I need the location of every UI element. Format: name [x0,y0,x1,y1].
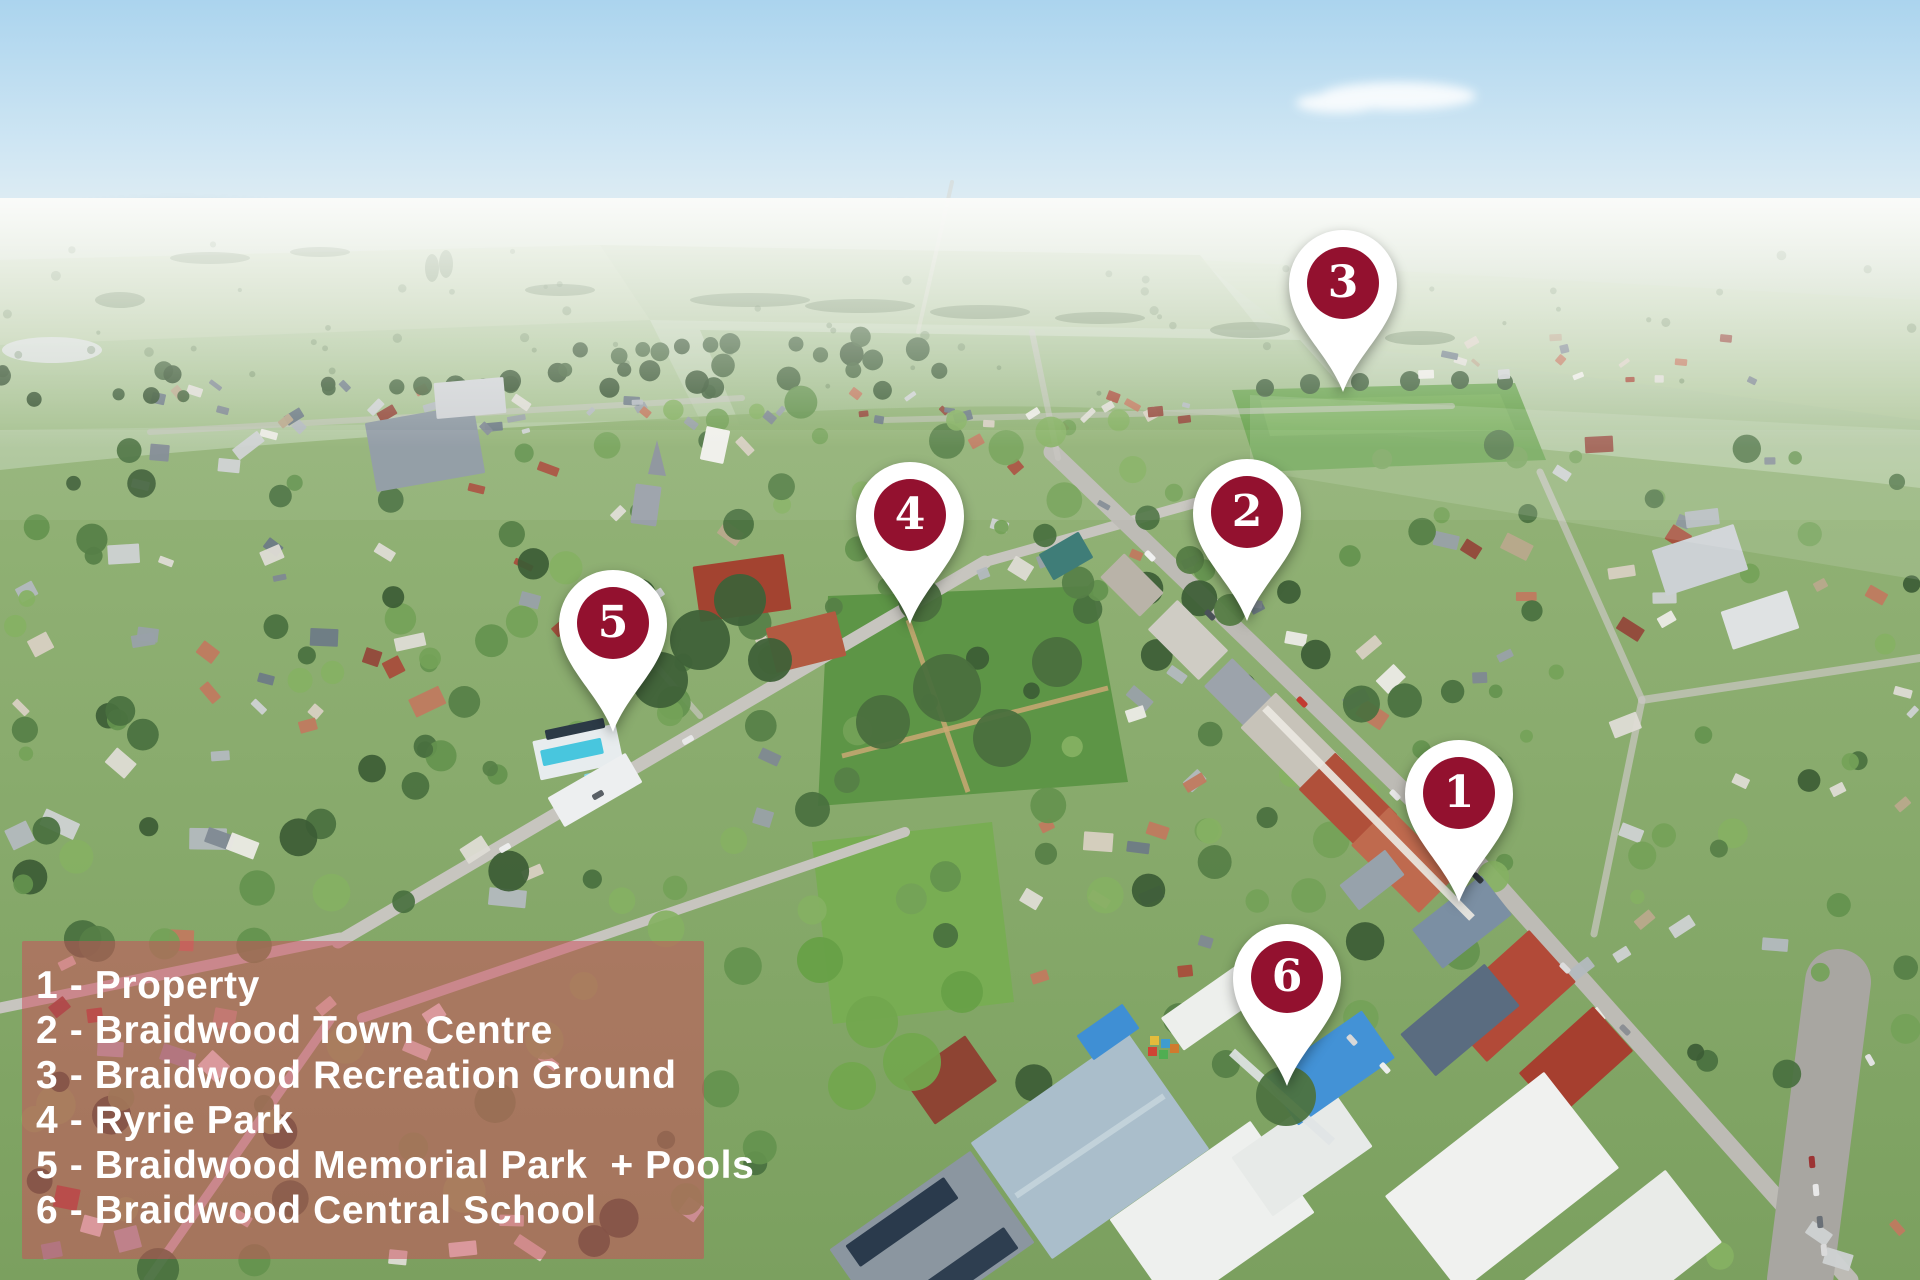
annotated-aerial-map: 123456 1 - Property2 - Braidwood Town Ce… [0,0,1920,1280]
legend-item-4: 4 - Ryrie Park [36,1098,692,1143]
legend-item-3: 3 - Braidwood Recreation Ground [36,1053,692,1098]
legend-item-6: 6 - Braidwood Central School [36,1188,692,1233]
legend-overlay: 1 - Property2 - Braidwood Town Centre3 -… [22,941,704,1259]
legend-item-5: 5 - Braidwood Memorial Park + Pools [36,1143,692,1188]
legend-item-2: 2 - Braidwood Town Centre [36,1008,692,1053]
legend-item-1: 1 - Property [36,963,692,1008]
